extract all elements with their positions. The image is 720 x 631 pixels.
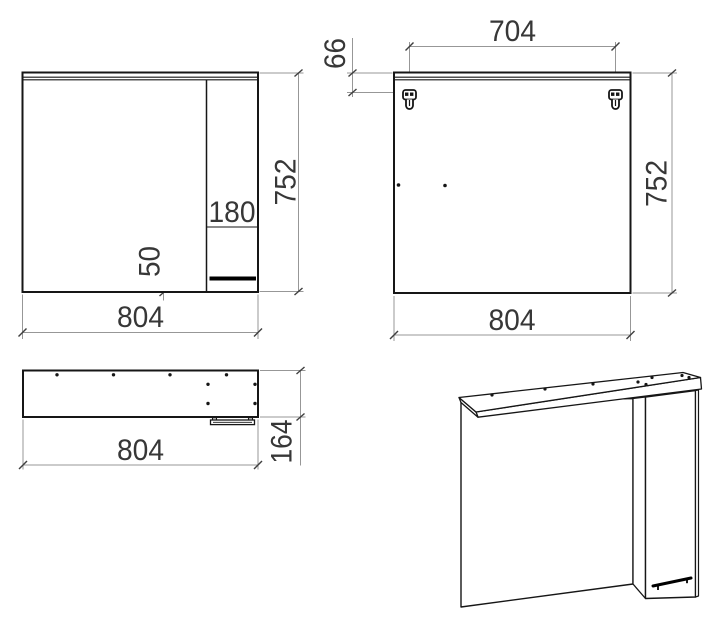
technical-drawing-cabinet: 180 50 752 804	[0, 0, 720, 631]
front-view: 180 50 752 804	[19, 70, 304, 340]
cabinet-right-edge	[696, 390, 699, 597]
top-depth-label: 164	[266, 420, 299, 464]
front-width-label: 804	[117, 301, 164, 334]
front-height-label: 752	[270, 159, 303, 206]
perspective-view	[459, 373, 702, 608]
top-view-door-handle	[211, 418, 255, 425]
back-width-label: 804	[489, 304, 536, 337]
screw-hole-dot	[443, 184, 447, 188]
back-hanger-spacing-label: 704	[489, 15, 536, 48]
back-hanger-offset-label: 66	[319, 38, 352, 69]
front-door-width-label: 180	[209, 196, 256, 229]
mirror-panel	[461, 399, 633, 608]
top-width-label: 804	[117, 434, 164, 467]
drawing-canvas: 180 50 752 804	[0, 0, 720, 631]
cabinet-side-panel	[633, 397, 646, 599]
back-height-label: 752	[641, 160, 674, 207]
cabinet-door	[646, 391, 696, 599]
top-view: 804 164	[19, 367, 306, 470]
back-view: 704 66 752 804	[319, 15, 677, 341]
screw-hole-dot	[397, 183, 401, 187]
front-handle-offset-label: 50	[134, 246, 167, 277]
